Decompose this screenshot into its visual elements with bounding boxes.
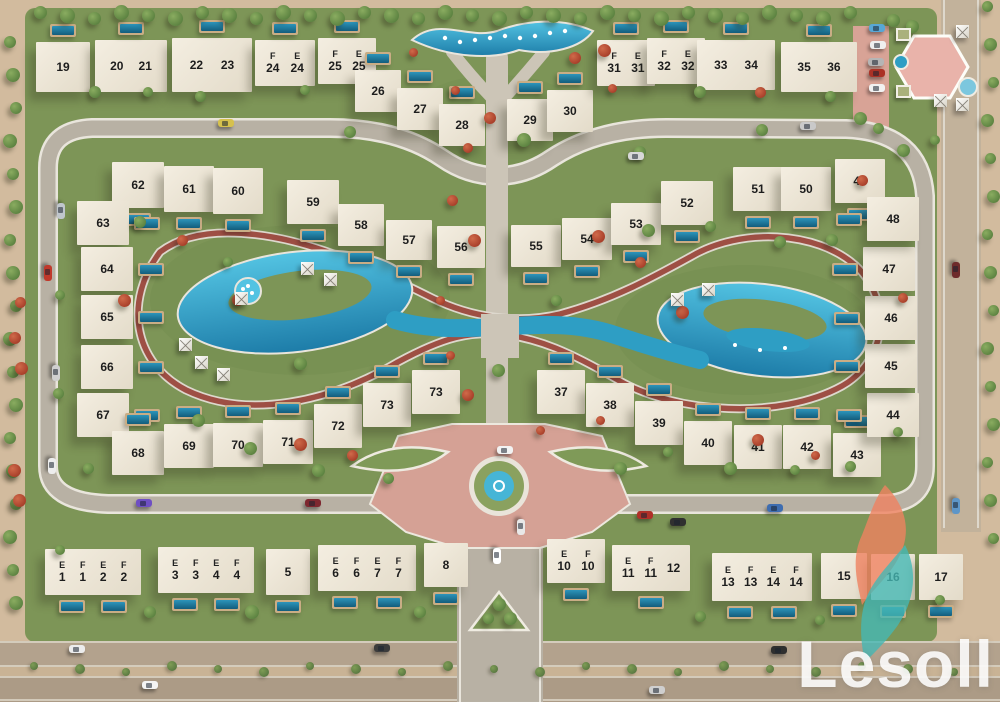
flowering-tree <box>9 332 21 344</box>
villa-label: E13F13E14F14 <box>712 566 812 588</box>
villa-label: 43 <box>833 449 881 461</box>
flowering-tree <box>857 175 868 186</box>
pool <box>517 81 543 94</box>
flowering-tree <box>536 426 545 435</box>
car <box>374 644 390 652</box>
tree <box>981 114 994 127</box>
car <box>497 446 513 454</box>
tree <box>358 6 371 19</box>
villa-15: 15 <box>821 553 867 599</box>
villa-label: 40 <box>684 437 732 449</box>
villa-label: E6F6E7F7 <box>318 557 416 579</box>
tree <box>3 134 17 148</box>
villa-68: 68 <box>112 431 164 475</box>
villa-label: 51 <box>733 183 783 195</box>
pool <box>880 605 906 618</box>
tree <box>276 5 291 20</box>
flowering-tree <box>451 86 460 95</box>
villa-label: 16 <box>871 571 915 583</box>
pool <box>832 263 858 276</box>
villa-label: 63 <box>77 217 129 229</box>
pool <box>125 413 151 426</box>
canopy-umbrella-icon <box>195 356 208 369</box>
pool <box>745 216 771 229</box>
villa-label: 61 <box>164 183 214 195</box>
tree <box>34 6 47 19</box>
car <box>493 548 501 564</box>
villa-43: 43 <box>833 433 881 477</box>
tree <box>134 216 146 228</box>
tree <box>83 463 94 474</box>
flowering-tree <box>13 494 26 507</box>
round-canopy <box>959 78 977 96</box>
tree <box>984 266 997 279</box>
villa-27: 27 <box>397 88 443 130</box>
tree <box>414 606 426 618</box>
villa-41: 41 <box>734 425 782 469</box>
tree <box>53 388 64 399</box>
canopy-umbrella-icon <box>324 273 337 286</box>
villa-label: 72 <box>314 420 362 432</box>
car <box>800 122 816 130</box>
car <box>44 265 52 281</box>
tree <box>873 123 884 134</box>
villa-28: 28 <box>439 104 485 146</box>
villa-5: 5 <box>266 549 310 595</box>
tree <box>306 662 314 670</box>
pool <box>638 596 664 609</box>
tree <box>222 8 237 23</box>
tree <box>6 266 20 280</box>
pool <box>376 596 402 609</box>
watermark-text: Lesoll <box>797 627 994 701</box>
flowering-tree <box>569 52 581 64</box>
pool <box>646 383 672 396</box>
pool <box>138 263 164 276</box>
flowering-tree <box>347 450 358 461</box>
tree <box>114 5 129 20</box>
tree <box>60 8 75 23</box>
villa-38: 38 <box>586 383 634 427</box>
tree <box>774 236 786 248</box>
tree <box>845 461 856 472</box>
tree <box>142 9 155 22</box>
tree <box>6 68 20 82</box>
pool <box>806 24 832 37</box>
tree <box>736 12 749 25</box>
flowering-tree <box>608 84 617 93</box>
villa-label: 65 <box>81 311 133 323</box>
tree <box>490 665 498 673</box>
car <box>952 262 960 278</box>
villa-33-34: 3334 <box>697 40 775 90</box>
villa-50: 50 <box>781 167 831 211</box>
villa-label: 45 <box>865 360 917 372</box>
tree <box>546 8 561 23</box>
tree <box>412 12 425 25</box>
canopy-umbrella-icon <box>301 262 314 275</box>
pool <box>59 600 85 613</box>
tree <box>766 665 774 673</box>
villa-label: 47 <box>863 263 915 275</box>
villa-56: 56 <box>437 226 485 268</box>
flowering-tree <box>447 195 458 206</box>
villa-45: 45 <box>865 344 917 388</box>
tree <box>55 545 65 555</box>
pool <box>674 230 700 243</box>
tree <box>551 295 562 306</box>
villa-label: 15 <box>821 570 867 582</box>
tree <box>244 442 257 455</box>
tree <box>695 611 706 622</box>
tree <box>930 135 940 145</box>
villa-40: 40 <box>684 421 732 465</box>
villa-label: 52 <box>661 197 713 209</box>
tree <box>7 168 19 180</box>
tree <box>143 87 153 97</box>
tree <box>30 662 38 670</box>
tree <box>988 305 999 316</box>
villa-35-36: 3536 <box>781 42 857 92</box>
tree <box>245 605 259 619</box>
villa-label: 57 <box>386 234 432 246</box>
villa-label: 44 <box>867 409 919 421</box>
car <box>869 24 885 32</box>
tree <box>4 234 16 246</box>
flowering-tree <box>676 306 689 319</box>
pool <box>433 592 459 605</box>
villa-label: 46 <box>865 312 917 324</box>
car <box>628 152 644 160</box>
villa-label: 73 <box>412 386 460 398</box>
tree <box>438 5 453 20</box>
flowering-tree <box>15 362 28 375</box>
canopy-umbrella-icon <box>217 368 230 381</box>
car <box>952 498 960 514</box>
pool <box>613 22 639 35</box>
villa-3-3-4-4: E3F3E4F4 <box>158 547 254 593</box>
villa-72: 72 <box>314 404 362 448</box>
villa-46: 46 <box>865 296 917 340</box>
canopy-umbrella-icon <box>702 283 715 296</box>
tree <box>75 664 85 674</box>
villa-label: 73 <box>363 399 411 411</box>
tree <box>719 661 729 671</box>
pool <box>138 361 164 374</box>
tree <box>790 465 800 475</box>
tree <box>330 11 345 26</box>
tree <box>4 36 16 48</box>
villa-label: 66 <box>81 361 133 373</box>
villa-59: 59 <box>287 180 339 224</box>
villa-48: 48 <box>867 197 919 241</box>
tree <box>192 414 205 427</box>
pool <box>448 273 474 286</box>
villa-label: 17 <box>919 571 963 583</box>
tree <box>9 398 23 412</box>
pool <box>407 70 433 83</box>
tree <box>756 124 768 136</box>
tree <box>398 668 406 676</box>
pool <box>272 22 298 35</box>
tree <box>517 133 531 147</box>
flowering-tree <box>468 234 481 247</box>
villa-label: 62 <box>112 179 164 191</box>
villa-label: E11F1112 <box>612 557 690 579</box>
villa-label: 2223 <box>172 59 252 71</box>
car <box>869 84 885 92</box>
pool <box>523 272 549 285</box>
tree <box>984 494 997 507</box>
tree <box>383 473 394 484</box>
amenity-pool <box>894 55 908 69</box>
tree <box>790 9 803 22</box>
pool <box>225 219 251 232</box>
pool <box>745 407 771 420</box>
pool <box>836 409 862 422</box>
pool <box>138 311 164 324</box>
pool <box>771 606 797 619</box>
villa-label: 39 <box>635 417 683 429</box>
tree <box>10 102 22 114</box>
tree <box>3 530 17 544</box>
car <box>57 203 65 219</box>
villa-61: 61 <box>164 166 214 212</box>
flowering-tree <box>15 297 26 308</box>
flowering-tree <box>596 416 605 425</box>
villa-6-6-7-7: E6F6E7F7 <box>318 545 416 591</box>
tree <box>694 86 706 98</box>
tree <box>935 595 945 605</box>
site-plan: Lesoll 1920212223F24E24F25E252627282930F… <box>0 0 1000 702</box>
car <box>649 686 665 694</box>
car <box>136 499 152 507</box>
car <box>637 511 653 519</box>
pool <box>574 265 600 278</box>
tree <box>982 1 993 12</box>
flowering-tree <box>811 451 820 460</box>
villa-label: 19 <box>36 61 90 73</box>
villa-51: 51 <box>733 167 783 211</box>
villa-47: 47 <box>863 247 915 291</box>
tree <box>987 190 1000 203</box>
villa-label: 3536 <box>781 61 857 73</box>
villa-52: 52 <box>661 181 713 225</box>
car <box>218 119 234 127</box>
tree <box>167 661 177 671</box>
villa-label: E3F3E4F4 <box>158 559 254 581</box>
cabana <box>896 28 911 41</box>
tree <box>981 342 994 355</box>
villa-label: 42 <box>783 441 831 453</box>
car <box>142 681 158 689</box>
pool <box>834 312 860 325</box>
flowering-tree <box>118 294 131 307</box>
villa-label: 54 <box>562 233 612 245</box>
pool <box>118 22 144 35</box>
car <box>69 645 85 653</box>
cabana <box>896 85 911 98</box>
tree <box>466 9 479 22</box>
villa-label: 27 <box>397 103 443 115</box>
lagoon-bridge <box>481 314 519 358</box>
villa-1-1-2-2: E1F1E2F2 <box>45 549 141 595</box>
tree <box>250 12 263 25</box>
tree <box>988 533 999 544</box>
pool <box>300 229 326 242</box>
car <box>305 499 321 507</box>
tree <box>259 667 269 677</box>
villa-30: 30 <box>547 90 593 132</box>
tree <box>614 462 627 475</box>
flowering-tree <box>752 434 764 446</box>
flowering-tree <box>462 389 474 401</box>
villa-label: E1F1E2F2 <box>45 561 141 583</box>
tree <box>195 91 206 102</box>
car <box>670 518 686 526</box>
pool <box>275 402 301 415</box>
tree <box>984 38 997 51</box>
car <box>869 69 885 77</box>
tree <box>294 357 307 370</box>
tree <box>887 14 900 27</box>
villa-58: 58 <box>338 204 384 246</box>
car <box>48 458 56 474</box>
villa-37: 37 <box>537 370 585 414</box>
tree <box>214 665 222 673</box>
villa-label: 38 <box>586 399 634 411</box>
tree <box>300 85 310 95</box>
tree <box>654 11 669 26</box>
tree <box>196 6 209 19</box>
canopy-umbrella-icon <box>934 94 947 107</box>
villa-53: 53 <box>611 203 661 245</box>
villa-label: 68 <box>112 447 164 459</box>
villa-16: 16 <box>871 554 915 600</box>
pool <box>794 407 820 420</box>
villa-label: 30 <box>547 105 593 117</box>
pool <box>172 598 198 611</box>
pool <box>365 52 391 65</box>
pool <box>695 403 721 416</box>
flowering-tree <box>592 230 605 243</box>
tree <box>988 77 999 88</box>
tree <box>304 9 317 22</box>
lesoll-watermark: Lesoll <box>797 626 994 702</box>
tree <box>663 447 673 457</box>
villa-label: 28 <box>439 119 485 131</box>
pool <box>225 405 251 418</box>
tree <box>708 8 723 23</box>
car <box>517 519 525 535</box>
villa-69: 69 <box>164 424 214 468</box>
pool <box>348 251 374 264</box>
tree <box>4 432 16 444</box>
tree <box>384 8 399 23</box>
villa-66: 66 <box>81 345 133 389</box>
pool <box>928 605 954 618</box>
villa-10-10: E10F10 <box>547 539 605 583</box>
villa-label: 59 <box>287 196 339 208</box>
flowering-tree <box>446 351 455 360</box>
pool <box>50 24 76 37</box>
villa-label: 64 <box>81 263 133 275</box>
flowering-tree <box>463 143 473 153</box>
villa-label: 48 <box>867 213 919 225</box>
tree <box>982 229 993 240</box>
tree <box>985 153 996 164</box>
villa-57: 57 <box>386 220 432 260</box>
tree <box>223 257 233 267</box>
flowering-tree <box>484 112 496 124</box>
tree <box>443 661 453 671</box>
flowering-tree <box>635 257 646 268</box>
tree <box>628 9 641 22</box>
flowering-tree <box>294 438 307 451</box>
pool <box>396 265 422 278</box>
pool <box>836 213 862 226</box>
canopy-umbrella-icon <box>956 98 969 111</box>
tree <box>535 667 545 677</box>
tree <box>674 668 682 676</box>
tree <box>627 664 637 674</box>
flowering-tree <box>898 293 908 303</box>
pool <box>557 72 583 85</box>
villa-17: 17 <box>919 554 963 600</box>
tree <box>705 221 716 232</box>
villa-label: 60 <box>213 185 263 197</box>
tree <box>483 613 494 624</box>
villa-label: 26 <box>355 85 401 97</box>
tree <box>815 615 825 625</box>
canopy-umbrella-icon <box>671 293 684 306</box>
tree <box>825 91 836 102</box>
villa-label: 37 <box>537 386 585 398</box>
pool <box>597 365 623 378</box>
villa-60: 60 <box>213 168 263 214</box>
pool <box>834 360 860 373</box>
tree <box>9 200 23 214</box>
villa-label: 2021 <box>95 60 167 72</box>
tree <box>600 5 615 20</box>
villa-22-23: 2223 <box>172 38 252 92</box>
villa-42: 42 <box>783 425 831 469</box>
canopy-umbrella-icon <box>956 25 969 38</box>
tree <box>492 364 505 377</box>
canopy-umbrella-icon <box>179 338 192 351</box>
villa-8: 8 <box>424 543 468 587</box>
car <box>767 504 783 512</box>
car <box>52 365 60 381</box>
pool <box>176 217 202 230</box>
tree <box>893 427 903 437</box>
flowering-tree <box>409 48 418 57</box>
villa-label: 50 <box>781 183 831 195</box>
villa-64: 64 <box>81 247 133 291</box>
villa-73: 73 <box>412 370 460 414</box>
car <box>771 646 787 654</box>
tree <box>844 6 857 19</box>
tree <box>7 564 19 576</box>
tree <box>987 418 1000 431</box>
roundabout-fountain <box>469 456 529 516</box>
car <box>868 58 884 66</box>
villa-13-13-14-14: E13F13E14F14 <box>712 553 812 601</box>
tree <box>89 86 101 98</box>
tree <box>504 612 517 625</box>
villa-label: 58 <box>338 219 384 231</box>
flowering-tree <box>755 87 766 98</box>
